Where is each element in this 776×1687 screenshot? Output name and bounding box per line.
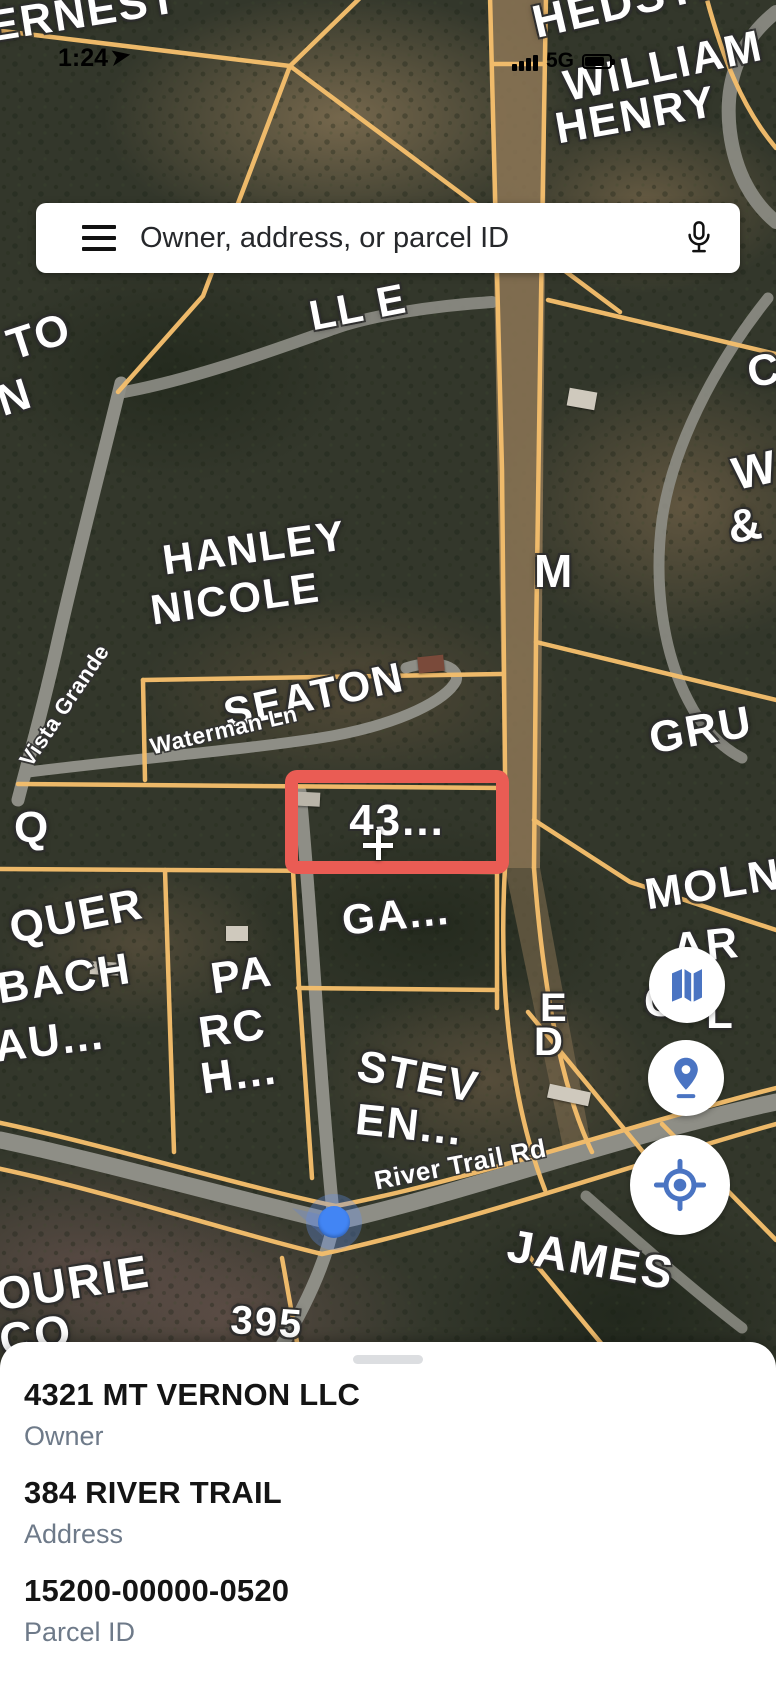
map-label-h: H... <box>198 1047 280 1101</box>
sheet-drag-handle[interactable] <box>353 1355 423 1364</box>
address-value: 384 RIVER TRAIL <box>24 1472 752 1514</box>
status-bar: 1:24 5G <box>0 0 776 80</box>
highlighted-parcel[interactable]: 43... <box>285 770 509 874</box>
parcel-info-sheet: 4321 MT VERNON LLC Owner 384 RIVER TRAIL… <box>0 1342 776 1687</box>
search-bar <box>36 203 740 273</box>
parcel-fields: 4321 MT VERNON LLC Owner 384 RIVER TRAIL… <box>24 1374 752 1668</box>
my-location-icon <box>653 1158 707 1212</box>
map-label-en: EN... <box>353 1098 465 1153</box>
clock: 1:24 <box>58 44 108 73</box>
signal-bars-icon <box>512 55 538 71</box>
search-input[interactable] <box>138 221 674 256</box>
owner-field: 4321 MT VERNON LLC Owner <box>24 1374 752 1454</box>
microphone-icon[interactable] <box>684 220 714 256</box>
map-label-d: D <box>534 1022 565 1062</box>
map-layers-button[interactable] <box>649 947 725 1023</box>
battery-icon <box>582 54 612 69</box>
building <box>417 655 445 674</box>
map-pin-icon <box>665 1056 707 1100</box>
app-screen: 43... ERNESTHEDSTROWILLIAMHENRYLL ETONCW… <box>0 0 776 1687</box>
current-location-dot <box>318 1206 350 1238</box>
owner-label: Owner <box>24 1418 752 1454</box>
map-label-q: Q <box>14 806 50 850</box>
map-label-395: 395 <box>229 1300 304 1345</box>
map-layers-icon <box>667 965 707 1005</box>
parcel-id-field: 15200-00000-0520 Parcel ID <box>24 1570 752 1650</box>
parcel-id-label: Parcel ID <box>24 1614 752 1650</box>
map-label-w: W <box>728 443 776 497</box>
marker-button[interactable] <box>648 1040 724 1116</box>
map-label-pa: PA <box>208 949 275 1001</box>
address-field: 384 RIVER TRAIL Address <box>24 1472 752 1552</box>
menu-icon[interactable] <box>82 225 116 251</box>
my-location-button[interactable] <box>630 1135 730 1235</box>
owner-value: 4321 MT VERNON LLC <box>24 1374 752 1416</box>
location-arrow-icon <box>108 45 135 74</box>
network-type: 5G <box>546 49 574 73</box>
map-center-crosshair-icon <box>363 830 393 860</box>
parcel-id-value: 15200-00000-0520 <box>24 1570 752 1612</box>
map-label-m: M <box>534 548 574 594</box>
address-label: Address <box>24 1516 752 1552</box>
building <box>226 926 248 941</box>
map-label-ga: GA... <box>340 889 452 942</box>
